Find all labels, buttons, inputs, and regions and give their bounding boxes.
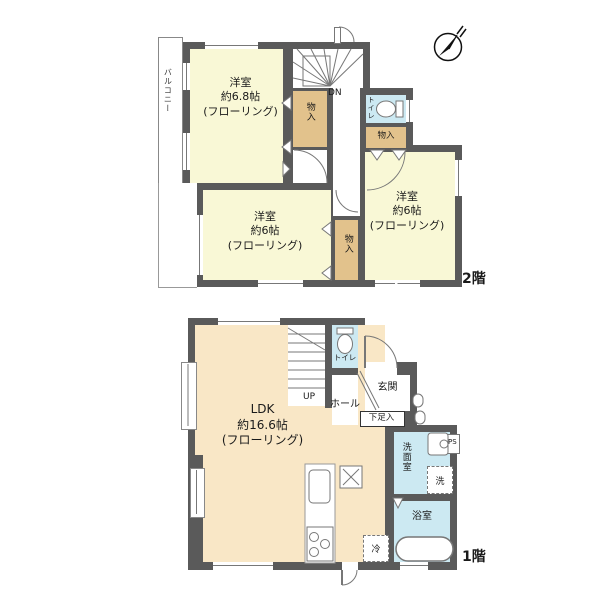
window-bay [181,362,197,430]
closet-b-label: 物入 [366,131,406,142]
ldk-label: LDK 約16.6帖 (フローリング) [200,402,325,449]
floor-plan: 洗 冷 [0,0,600,600]
window [213,562,273,570]
window [400,562,428,570]
room-b-label: 洋室 約6帖 (フローリング) [200,210,330,253]
floor2-label: 2階 [462,270,486,288]
door-opening [342,562,358,570]
stairwell-2f [293,49,363,88]
ldk-name: LDK [200,402,325,418]
door-leaf [334,27,341,44]
room-c-name: 洋室 [343,190,471,204]
window [375,280,420,287]
shoe-box-label: 下足入 [360,411,403,425]
entrance-door-opening [365,362,397,375]
stairs-dn-label: DN [328,88,342,100]
stairs-up-label: UP [294,392,324,404]
toilet-2f-label: トイレ [366,96,375,120]
window [205,42,258,49]
floor1-label: 1階 [462,548,486,566]
room-a-name: 洋室 [178,76,303,90]
hall-label: ホール [323,398,367,411]
window [258,280,303,287]
entrance-label: 玄関 [365,381,410,394]
closet-a-label: 物入 [303,102,315,122]
window [406,100,413,122]
compass-icon [435,26,467,61]
refrigerator: 冷 [363,535,389,562]
toilet-1f-label: トイレ [331,353,359,363]
washer-label: 洗 [435,474,444,487]
ldk-floor: (フローリング) [200,433,325,449]
eaves-outline [158,183,197,288]
window [218,318,280,325]
room-b-name: 洋室 [200,210,330,224]
bathroom-label: 浴室 [394,510,450,523]
pipe-space-label: PS [448,438,457,447]
room-a-label: 洋室 約6.8帖 (フローリング) [178,76,303,119]
wall-segment [332,368,358,375]
room-a-floor: (フローリング) [178,105,303,119]
room-b-floor: (フローリング) [200,239,330,253]
room-c-label: 洋室 約6帖 (フローリング) [343,190,471,233]
window [183,133,190,170]
washroom-label: 洗面室 [399,442,411,472]
room-c-floor: (フローリング) [343,219,471,233]
washing-machine: 洗 [427,466,453,494]
fridge-label: 冷 [371,542,380,555]
closet-c-label: 物入 [341,234,353,254]
room-b-size: 約6帖 [200,224,330,238]
wall-segment [325,325,332,408]
room-a-size: 約6.8帖 [178,90,303,104]
balcony-label: バルコニー [162,68,172,113]
ldk-size: 約16.6帖 [200,418,325,434]
window-bay [190,468,205,518]
room-c-size: 約6帖 [343,204,471,218]
passage-2f [293,150,327,183]
